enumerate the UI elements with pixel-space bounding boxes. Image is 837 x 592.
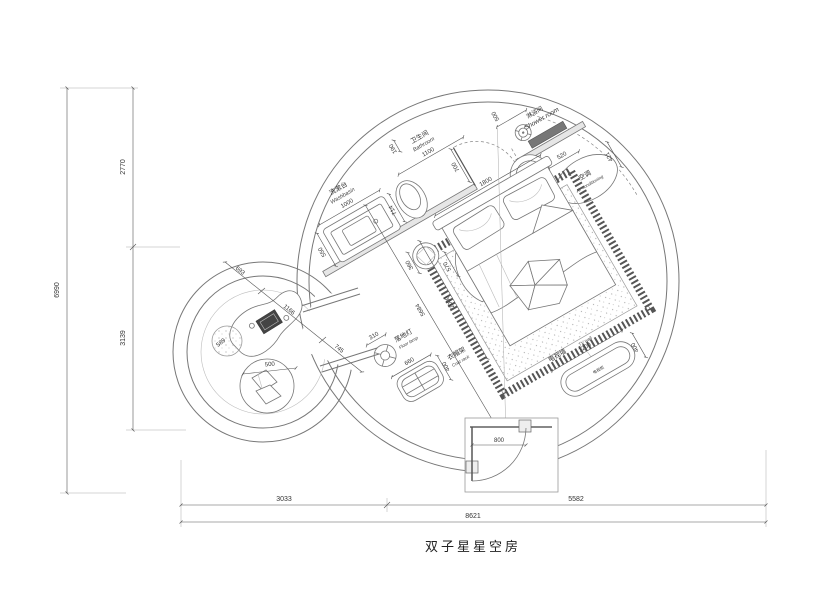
dim-upper-height: 2770	[120, 159, 127, 175]
entrance: 800	[465, 418, 558, 492]
tv-cabinet: 电视柜	[556, 337, 640, 402]
dim-right-width: 5582	[568, 496, 584, 503]
passage	[296, 288, 382, 374]
door-post	[519, 420, 531, 432]
floor-plan-page: 洗漱台 Washbasin 1000 550 714 卫生间 Bathroom …	[0, 0, 837, 592]
dim-bed-length: 2000	[444, 294, 456, 309]
dim-left-width: 3033	[276, 496, 292, 503]
rotated-interior: 洗漱台 Washbasin 1000 550 714 卫生间 Bathroom …	[284, 48, 713, 481]
dim-lounge-a: 693	[234, 266, 246, 277]
page-title: 双子星星空房	[425, 539, 521, 554]
dim-bathroom-door: 700	[451, 160, 462, 172]
left-dimensions: 6990 2770 3139	[54, 88, 186, 493]
lounge-side-table	[212, 326, 242, 356]
dim-platform-diagonal: 5684	[415, 302, 427, 317]
dim-washbasin-depth: 550	[317, 245, 328, 257]
dim-chair: 500	[265, 361, 276, 368]
coat-rack	[394, 358, 447, 405]
dim-coat-width: 660	[404, 357, 416, 368]
dim-entrance-door: 800	[494, 438, 505, 444]
dim-shower-width: 500	[491, 109, 502, 121]
dim-total-height: 6990	[54, 282, 61, 298]
dim-lower-height: 3139	[120, 330, 127, 346]
dim-total-width: 8621	[465, 513, 481, 520]
dim-ac-width: 520	[556, 151, 568, 162]
floor-plan-canvas: 洗漱台 Washbasin 1000 550 714 卫生间 Bathroom …	[0, 0, 837, 592]
dim-wall-gap: 190	[388, 142, 399, 154]
bathroom-door	[453, 125, 515, 186]
